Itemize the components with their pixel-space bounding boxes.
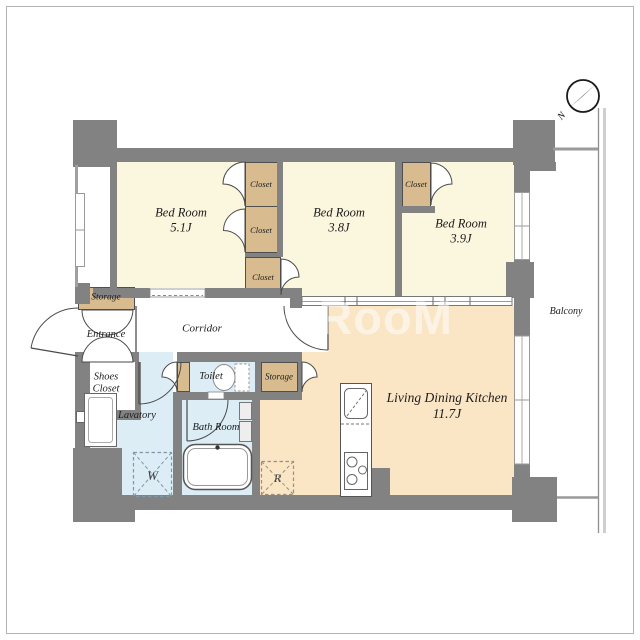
sliding-partition-track <box>302 297 512 306</box>
bathroom-door <box>187 400 228 441</box>
closet4-bifold-door <box>431 163 452 205</box>
toilet-label: Toilet <box>199 371 223 383</box>
ldk-label: Living Dining Kitchen11.7J <box>387 390 508 422</box>
ldk-window <box>515 336 530 464</box>
bedroom1-label: Bed Room5.1J <box>155 205 207 235</box>
bathroom-label: Bath Room <box>193 422 240 434</box>
bathtub <box>184 445 252 490</box>
closet4-label: Closet <box>405 179 427 189</box>
closet2-bifold-door <box>224 209 246 252</box>
compass-icon: N <box>555 80 599 123</box>
washer-space: W <box>134 453 172 497</box>
kitchen-counter <box>341 384 372 497</box>
entrance-door <box>31 308 78 356</box>
plan-detail-layer: W R N <box>0 0 640 640</box>
balcony-label: Balcony <box>550 306 583 318</box>
entrance-label: Entrance <box>87 329 126 341</box>
lavatory-label: Lavatory <box>118 410 156 422</box>
storage-ldk-bifold-door <box>302 362 317 392</box>
storage-ldk-label: Storage <box>265 372 293 383</box>
washer-label: W <box>147 468 159 483</box>
closet2-label: Closet <box>250 225 272 235</box>
closet1-label: Closet <box>250 179 272 189</box>
compass-north-label: N <box>555 109 569 123</box>
bedroom2-label: Bed Room3.8J <box>313 205 365 235</box>
lavatory-sink <box>77 394 117 447</box>
floor-plan-canvas: W R N Bed Room5.1J Bed Room3.8J Bed Room… <box>0 0 640 640</box>
bedroom3-label: Bed Room3.9J <box>435 216 487 246</box>
storage-entrance-label: Storage <box>91 292 121 303</box>
closet3-bifold-door <box>281 259 299 295</box>
corridor-ldk-door <box>284 306 328 350</box>
bedroom1-window <box>76 194 85 267</box>
refrigerator-label: R <box>273 471 282 485</box>
closet1-bifold-door <box>223 162 245 206</box>
corridor-label: Corridor <box>182 323 222 336</box>
bedroom1-sliding-door <box>150 289 205 297</box>
refrigerator-space: R <box>262 462 294 495</box>
bedroom3-window <box>515 193 530 260</box>
toilet-bifold-door <box>162 362 177 392</box>
shoes-closet-label: ShoesCloset <box>93 372 120 397</box>
closet3-label: Closet <box>252 272 274 282</box>
